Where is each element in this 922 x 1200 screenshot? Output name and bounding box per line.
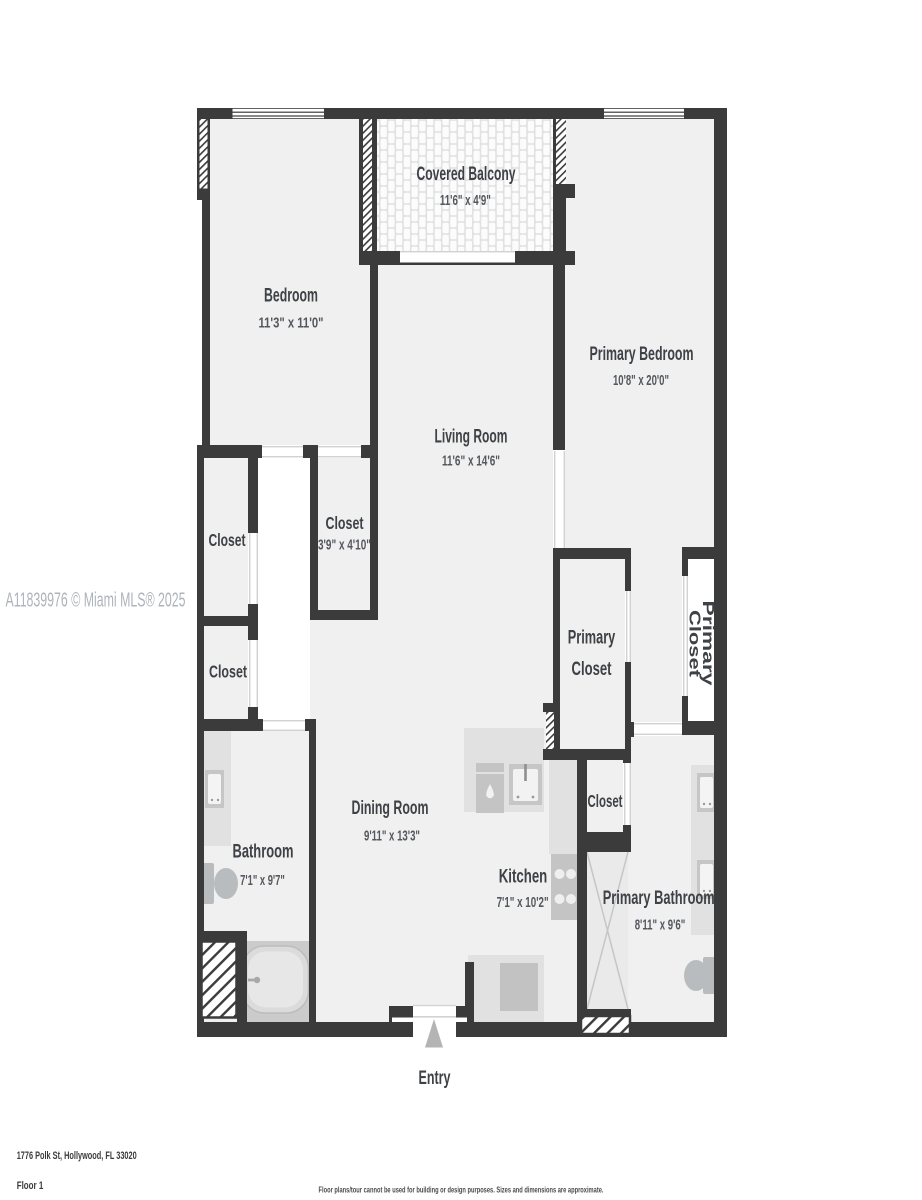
svg-text:Closet: Closet (685, 610, 702, 678)
svg-text:Closet: Closet (588, 791, 623, 811)
svg-text:Primary: Primary (568, 628, 616, 649)
svg-text:9'11" x 13'3": 9'11" x 13'3" (364, 829, 420, 845)
svg-text:Bathroom: Bathroom (233, 842, 294, 863)
svg-text:A11839976 © Miami MLS® 2025: A11839976 © Miami MLS® 2025 (6, 590, 186, 612)
svg-text:8'11" x 9'6": 8'11" x 9'6" (635, 918, 686, 934)
svg-text:Kitchen: Kitchen (499, 867, 548, 888)
svg-text:Closet: Closet (209, 530, 246, 550)
svg-text:Floor plans/tour cannot be use: Floor plans/tour cannot be used for buil… (319, 1184, 604, 1194)
svg-text:10'8" x 20'0": 10'8" x 20'0" (613, 373, 669, 389)
svg-text:Closet: Closet (209, 662, 247, 682)
svg-text:Floor 1: Floor 1 (17, 1180, 44, 1192)
svg-text:Covered Balcony: Covered Balcony (417, 164, 516, 185)
svg-text:Closet: Closet (326, 513, 364, 533)
svg-text:Primary Bathroom: Primary Bathroom (603, 888, 715, 909)
svg-text:11'6" x 14'6": 11'6" x 14'6" (442, 454, 500, 470)
svg-text:7'1" x 9'7": 7'1" x 9'7" (240, 873, 285, 889)
svg-text:Bedroom: Bedroom (264, 286, 318, 307)
svg-text:Dining Room: Dining Room (352, 798, 429, 819)
svg-text:7'1" x 10'2": 7'1" x 10'2" (497, 895, 549, 911)
svg-text:Primary Bedroom: Primary Bedroom (590, 344, 694, 365)
svg-text:11'3" x 11'0": 11'3" x 11'0" (259, 316, 324, 332)
svg-text:Entry: Entry (419, 1068, 451, 1089)
svg-text:11'6" x 4'9": 11'6" x 4'9" (440, 193, 491, 209)
svg-text:3'9" x 4'10": 3'9" x 4'10" (318, 538, 371, 554)
svg-text:Living Room: Living Room (435, 427, 508, 448)
svg-text:Closet: Closet (572, 659, 612, 680)
svg-text:1776 Polk St, Hollywood, FL 33: 1776 Polk St, Hollywood, FL 33020 (17, 1150, 137, 1162)
